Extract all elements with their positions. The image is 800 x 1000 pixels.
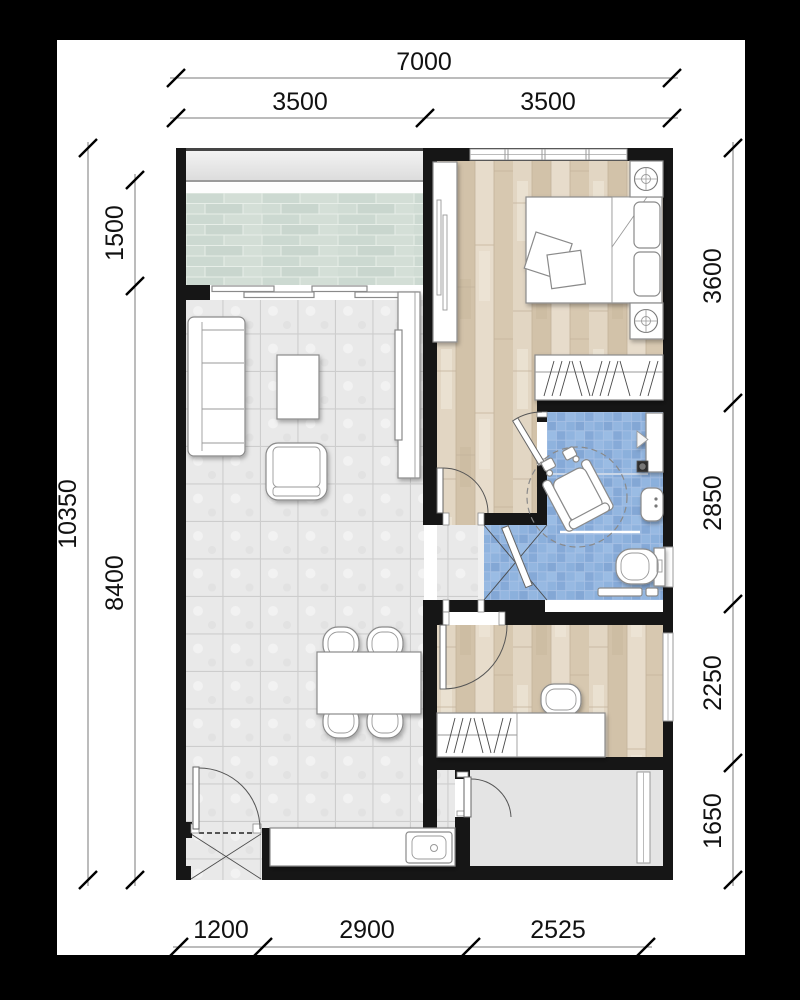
hallway-threshold <box>478 525 484 600</box>
jamb <box>478 513 484 525</box>
floor-plan-canvas: 7000 3500 3500 10350 1500 8400 3600 2850… <box>0 0 800 1000</box>
desk-chair <box>541 684 581 715</box>
dim-bottom-b: 2900 <box>339 916 395 944</box>
pillow <box>634 252 660 296</box>
wall-bottom-entry-stub <box>176 866 191 880</box>
dim-top-total: 7000 <box>396 48 452 76</box>
bath-accessory <box>646 588 658 596</box>
jamb <box>499 612 505 625</box>
jamb <box>478 600 484 612</box>
dim-bottom-a: 1200 <box>193 916 249 944</box>
wall-bathroom-left-lower <box>537 465 547 525</box>
balcony-railing <box>186 151 423 181</box>
wall-living-bedroom2 <box>423 600 437 866</box>
wall-bathroom-left-upper <box>537 400 547 422</box>
jamb <box>443 513 449 525</box>
coffee-table <box>277 355 319 419</box>
jamb <box>537 412 547 417</box>
sofa <box>188 317 245 456</box>
dim-bottom-c: 2525 <box>530 916 586 944</box>
corridor-floor <box>437 400 537 525</box>
wall-hall-top-right <box>484 513 545 525</box>
dim-top-a: 3500 <box>272 88 328 116</box>
dim-right-b: 2850 <box>699 475 727 531</box>
cushion <box>547 250 585 288</box>
dim-top-b: 3500 <box>520 88 576 116</box>
utility-room-floor <box>470 770 663 866</box>
armchair <box>266 443 327 500</box>
balcony-sliding-door <box>210 285 423 300</box>
wall-utility-left-lower <box>455 817 470 866</box>
dim-left-total: 10350 <box>54 479 82 549</box>
dim-right-c: 2250 <box>699 655 727 711</box>
wall-bedroom1-bathroom <box>537 400 663 412</box>
tv <box>395 330 402 440</box>
wall-bedroom2-bottom <box>423 757 673 770</box>
pillow <box>634 202 660 248</box>
wall-hall-top-left <box>423 513 443 525</box>
balcony-edge-line <box>186 148 423 151</box>
dim-right-d: 1650 <box>699 793 727 849</box>
closet <box>433 162 457 342</box>
jamb <box>443 612 449 625</box>
balcony-railing-ledge <box>186 183 423 193</box>
tv-console <box>395 292 420 478</box>
bath-mat <box>598 588 642 596</box>
bed <box>524 197 662 303</box>
wall-bedroom2-top-left <box>423 612 443 625</box>
nightstand <box>630 161 663 197</box>
dining-table <box>317 652 421 714</box>
nightstand <box>630 303 663 339</box>
floor-plan-drawing: 7000 3500 3500 10350 1500 8400 3600 2850… <box>0 0 800 1000</box>
wall-entry-stub <box>176 822 192 838</box>
dim-left-b: 8400 <box>101 555 129 611</box>
toilet-bowl <box>616 549 658 584</box>
wardrobe-desk-unit <box>437 713 605 757</box>
jamb <box>443 600 449 612</box>
wall-right <box>663 148 673 880</box>
jamb <box>457 772 468 777</box>
toilet <box>616 548 665 586</box>
kitchen-sink <box>406 832 452 863</box>
dim-right-a: 3600 <box>699 248 727 304</box>
hallway-floor <box>437 525 478 600</box>
utility-sliding-window <box>637 772 650 863</box>
bedroom-2-window <box>663 633 673 721</box>
wall-bottom <box>262 866 673 880</box>
wardrobe <box>535 355 663 400</box>
dim-left-a: 1500 <box>101 205 129 261</box>
balcony-floor <box>186 193 423 285</box>
wall-left <box>176 148 186 880</box>
bedroom-1-window <box>470 149 627 160</box>
wall-bedroom2-top-right <box>505 612 673 625</box>
wall-kitchen-stub <box>262 828 270 880</box>
kitchen-counter <box>270 828 455 866</box>
washbasin <box>641 488 663 521</box>
